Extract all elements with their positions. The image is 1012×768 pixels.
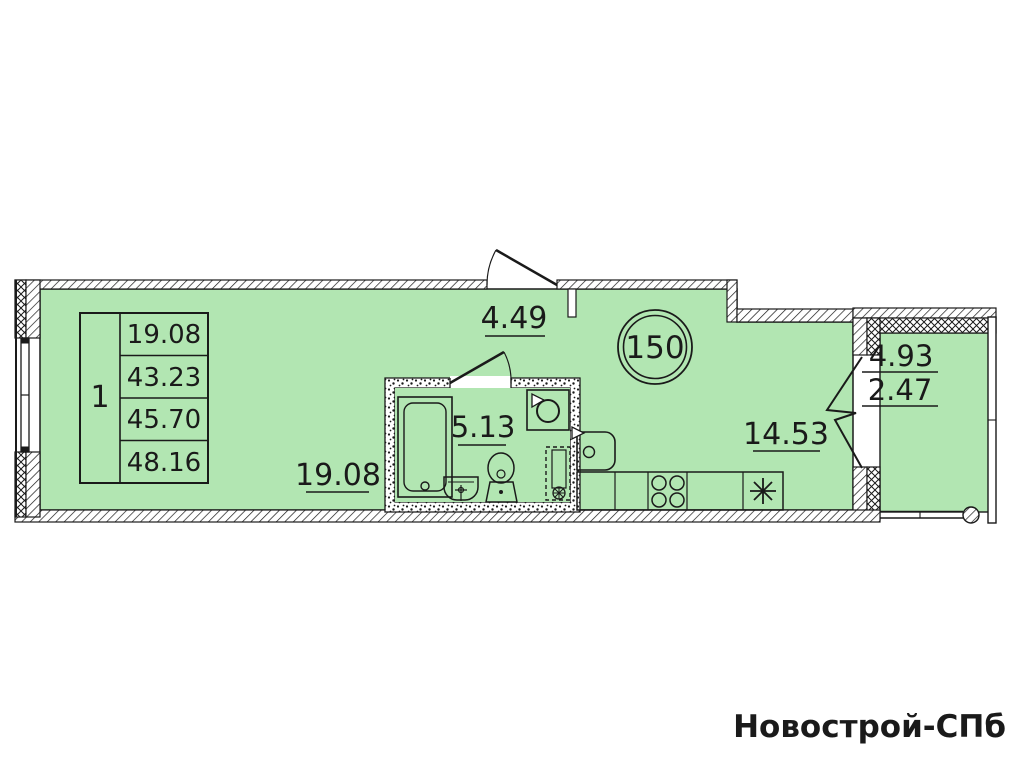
balcony-pillar bbox=[963, 507, 979, 523]
floor-plan-page: 1 19.08 43.23 45.70 48.16 150 4.49 5.13 … bbox=[0, 0, 1012, 768]
table-value-area: 43.23 bbox=[127, 363, 201, 393]
hallway-area-label: 4.49 bbox=[481, 301, 548, 336]
entrance-door-swing bbox=[487, 250, 496, 285]
table-value-living: 19.08 bbox=[127, 320, 201, 350]
floor-plan-canvas: 1 19.08 43.23 45.70 48.16 150 4.49 5.13 … bbox=[0, 0, 1012, 768]
balcony-full-area-label: 4.93 bbox=[869, 339, 934, 373]
kitchen-top-wall bbox=[737, 309, 853, 322]
top-wall-right bbox=[557, 280, 737, 289]
window-left-cap-top bbox=[21, 338, 29, 343]
bathroom bbox=[385, 376, 580, 512]
hall-wall-stub bbox=[568, 289, 576, 317]
left-wall-top bbox=[26, 280, 40, 338]
top-wall-left bbox=[15, 280, 487, 289]
top-step-wall bbox=[727, 280, 737, 322]
balcony-left-upper-block bbox=[853, 318, 867, 355]
bathroom-area-label: 5.13 bbox=[451, 410, 516, 444]
watermark: Новострой-СПб bbox=[733, 709, 1006, 745]
kitchen-area-label: 14.53 bbox=[743, 417, 829, 452]
balcony-reduced-area-label: 2.47 bbox=[868, 373, 933, 407]
unit-number: 150 bbox=[625, 330, 684, 366]
table-rooms-count: 1 bbox=[90, 380, 109, 415]
table-value-total-full: 48.16 bbox=[127, 448, 201, 478]
balcony-top-band bbox=[866, 318, 996, 333]
left-wall-bottom bbox=[26, 452, 40, 517]
entrance-door-leaf bbox=[496, 250, 557, 285]
entrance-door bbox=[487, 250, 557, 285]
table-value-total-reduced: 45.70 bbox=[127, 405, 201, 435]
toilet-base-dot bbox=[499, 490, 503, 494]
window-left-cap-bottom bbox=[21, 447, 29, 452]
living-room-area-label: 19.08 bbox=[295, 458, 381, 493]
balcony-top-wall bbox=[853, 308, 996, 318]
window-left bbox=[21, 338, 29, 452]
